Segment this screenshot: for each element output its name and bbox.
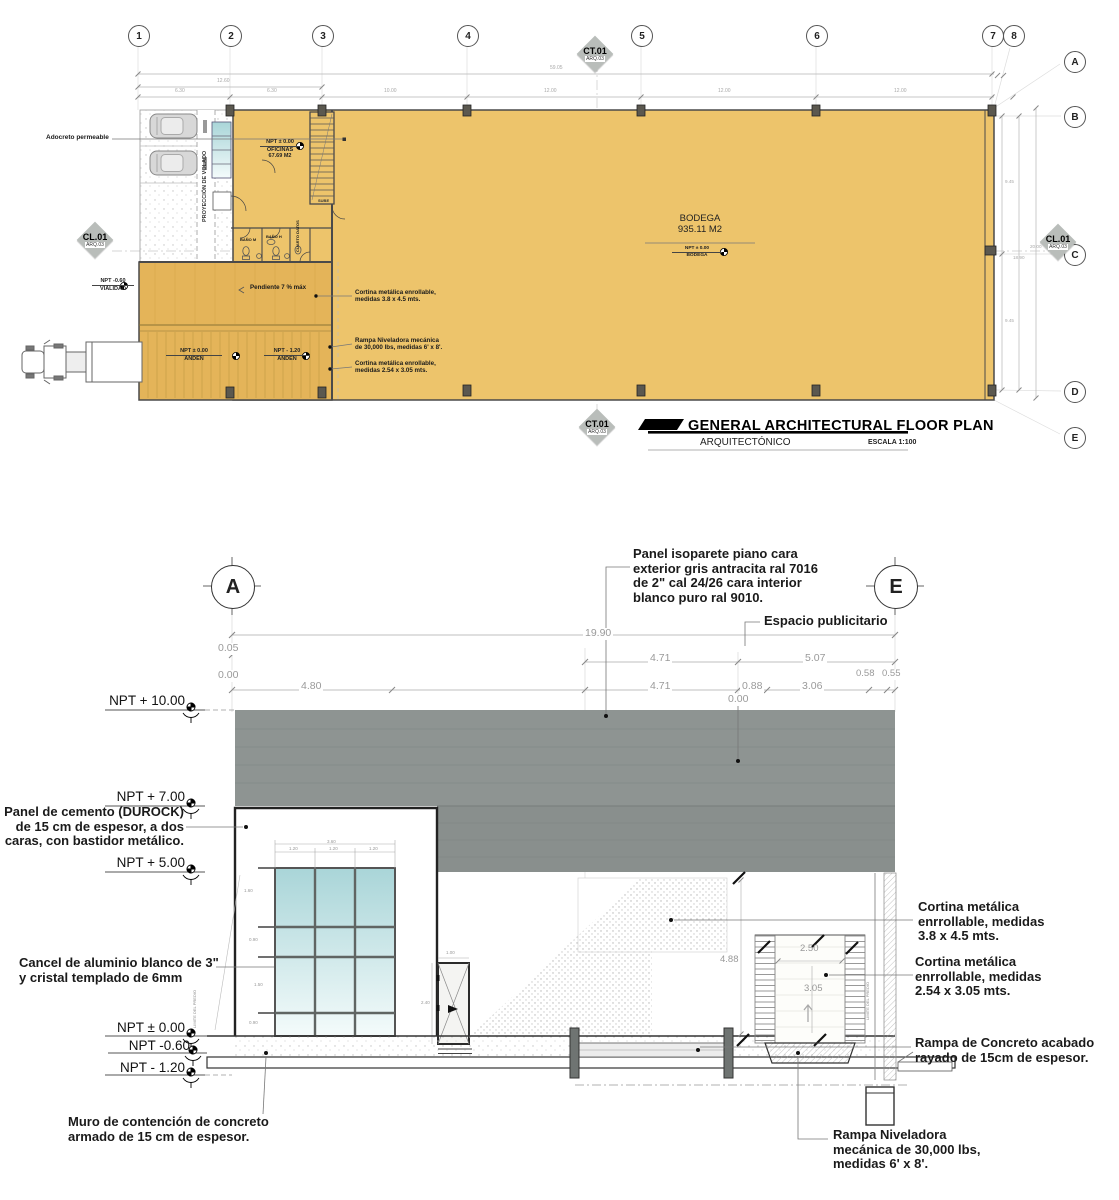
dim-v: 18.90 <box>1013 255 1025 260</box>
dim-seg: 12.00 <box>718 89 731 95</box>
level-label-anden-120: NPT - 1.20 ANDEN <box>264 348 310 362</box>
dim-480: 4.80 <box>299 681 323 693</box>
dim-306: 3.06 <box>800 681 824 693</box>
note-adocreto: Adocreto permeable <box>46 134 109 141</box>
dim-055: 0.55 <box>882 669 901 680</box>
dim-w120: 1.20 <box>369 846 378 851</box>
dim-058: 0.58 <box>856 669 875 680</box>
level-npt-10: NPT + 10.00 <box>100 693 185 708</box>
level-label-oficinas: NPT ± 0.00 OFICINAS 67.69 M2 <box>260 139 300 159</box>
level-npt-060: NPT -0.60 <box>105 1038 190 1053</box>
dim-w120: 1.20 <box>329 846 338 851</box>
dim-overall: 59.05 <box>550 66 563 72</box>
grid-bubble-1: 1 <box>128 25 150 47</box>
truck-icon <box>22 340 142 384</box>
dim-seg: 12.00 <box>544 89 557 95</box>
dim-000b: 0.00 <box>726 694 750 706</box>
dim-471b: 4.71 <box>648 681 672 693</box>
level-npt-5: NPT + 5.00 <box>100 855 185 870</box>
drawing-scale: ESCALA 1:100 <box>868 439 916 447</box>
level-npt-120: NPT - 1.20 <box>100 1060 185 1075</box>
dim-door-240: 2.40 <box>421 1000 430 1005</box>
dim-v: 9.45 <box>1005 179 1014 184</box>
elev-bubble-a: A <box>211 565 255 609</box>
grid-bubble-4: 4 <box>457 25 479 47</box>
dim-v: 20.00 <box>1030 244 1042 249</box>
dim-005: 0.05 <box>216 643 240 655</box>
dim-v: 9.45 <box>1005 318 1014 323</box>
dim-h160: 1.60 <box>244 888 253 893</box>
dim-488: 4.88 <box>720 955 739 966</box>
note-espacio-publicitario: Espacio publicitario <box>764 614 888 629</box>
note-cortina-38: Cortina metálica enrollable, medidas 3.8… <box>355 290 436 304</box>
dim-471a: 4.71 <box>648 653 672 665</box>
dim-door-100: 1.00 <box>446 950 455 955</box>
grid-bubble-2: 2 <box>220 25 242 47</box>
dim-1990: 19.90 <box>583 628 613 640</box>
grid-bubble-d: D <box>1064 381 1086 403</box>
grid-bubble-5: 5 <box>631 25 653 47</box>
car-icon <box>150 114 197 138</box>
note-panel-isoparete: Panel isoparete piano cara exterior gris… <box>633 547 818 605</box>
dim-w120: 1.20 <box>289 846 298 851</box>
dim-pair: 12.60 <box>217 79 230 85</box>
note-cancel-aluminio: Cancel de aluminio blanco de 3" y crista… <box>19 956 219 985</box>
label-limite-predio: LIMITE DEL PREDIO <box>866 982 870 1020</box>
room-label-bodega: BODEGA 935.11 M2 <box>650 214 750 235</box>
grid-bubble-8: 8 <box>1003 25 1025 47</box>
label-limite-predio: LIMITE DEL PREDIO <box>193 990 197 1028</box>
dim-seg: 6.30 <box>267 89 277 95</box>
dim-seg: 6.30 <box>175 89 185 95</box>
note-volado: PROYECCIÓN DE VOLADO <box>202 151 208 222</box>
note-cortina-254-elev: Cortina metálica enrrollable, medidas 2.… <box>915 955 1041 999</box>
label-sube: SUBE <box>318 199 329 203</box>
note-durock: Panel de cemento (DUROCK) de 15 cm de es… <box>0 805 184 849</box>
dim-h090: 0.90 <box>249 1020 258 1025</box>
level-npt-7: NPT + 7.00 <box>100 789 185 804</box>
dim-h150: 1.50 <box>254 982 263 987</box>
plan-geometry <box>22 46 1061 450</box>
car-icon <box>150 151 197 175</box>
note-cortina-38-elev: Cortina metálica enrrollable, medidas 3.… <box>918 900 1044 944</box>
dim-seg: 10.00 <box>384 89 397 95</box>
dim-000a: 0.00 <box>216 670 240 682</box>
note-muro-contencion: Muro de contención de concreto armado de… <box>68 1115 269 1144</box>
grid-bubble-7: 7 <box>982 25 1004 47</box>
note-pendiente: Pendiente 7 % máx <box>250 285 306 292</box>
grid-bubble-a: A <box>1064 51 1086 73</box>
drawing-subtitle: ARQUITECTÓNICO <box>700 437 791 448</box>
dim-h090: 0.90 <box>249 937 258 942</box>
dim-250: 2.50 <box>800 944 819 955</box>
note-rampa-niveladora-plan: Rampa Niveladora mecánica de 30,000 lbs,… <box>355 338 442 352</box>
grid-bubble-e: E <box>1064 427 1086 449</box>
dim-seg: 12.00 <box>894 89 907 95</box>
dim-w360: 3.60 <box>327 839 336 844</box>
level-label-anden-0: NPT ± 0.00 ANDEN <box>166 348 222 362</box>
note-rampa-concreto: Rampa de Concreto acabado rayado de 15cm… <box>915 1036 1094 1065</box>
label-bano-h: BAÑO H <box>266 235 282 239</box>
section-marker-ct01-top: CT.01 ARQ.03 <box>573 32 617 76</box>
note-rampa-niveladora-elev: Rampa Niveladora mecánica de 30,000 lbs,… <box>833 1128 980 1172</box>
section-marker-cl01-right: CL.01 ARQ.03 <box>1036 220 1080 264</box>
grid-bubble-6: 6 <box>806 25 828 47</box>
dim-305: 3.05 <box>804 984 823 995</box>
section-marker-ct01-bottom: CT.01 ARQ.03 <box>575 405 619 449</box>
elev-bubble-e: E <box>874 565 918 609</box>
level-marker-icon <box>232 352 239 359</box>
dim-088: 0.88 <box>740 681 764 693</box>
architectural-sheet: 1 2 3 4 5 6 7 8 A B C D E CT.01 ARQ.03 C… <box>0 0 1119 1200</box>
label-cuarto-datos: CUARTO DATOS <box>296 220 300 252</box>
note-cortina-254-plan: Cortina metálica enrollable, medidas 2.5… <box>355 361 436 375</box>
section-marker-cl01-left: CL.01 ARQ.03 <box>73 218 117 262</box>
level-label-vialidad: NPT -0.60 VIALIDAD <box>92 278 134 292</box>
dim-507: 5.07 <box>803 653 827 665</box>
grid-bubble-b: B <box>1064 106 1086 128</box>
level-label-bodega: NPT ± 0.00 BODEGA <box>672 246 722 258</box>
drawing-title: GENERAL ARCHITECTURAL FLOOR PLAN <box>688 418 994 434</box>
level-npt-0: NPT ± 0.00 <box>100 1020 185 1035</box>
level-marker-icon <box>183 703 201 1088</box>
label-bano-m: BAÑO M <box>240 238 256 242</box>
grid-bubble-3: 3 <box>312 25 334 47</box>
